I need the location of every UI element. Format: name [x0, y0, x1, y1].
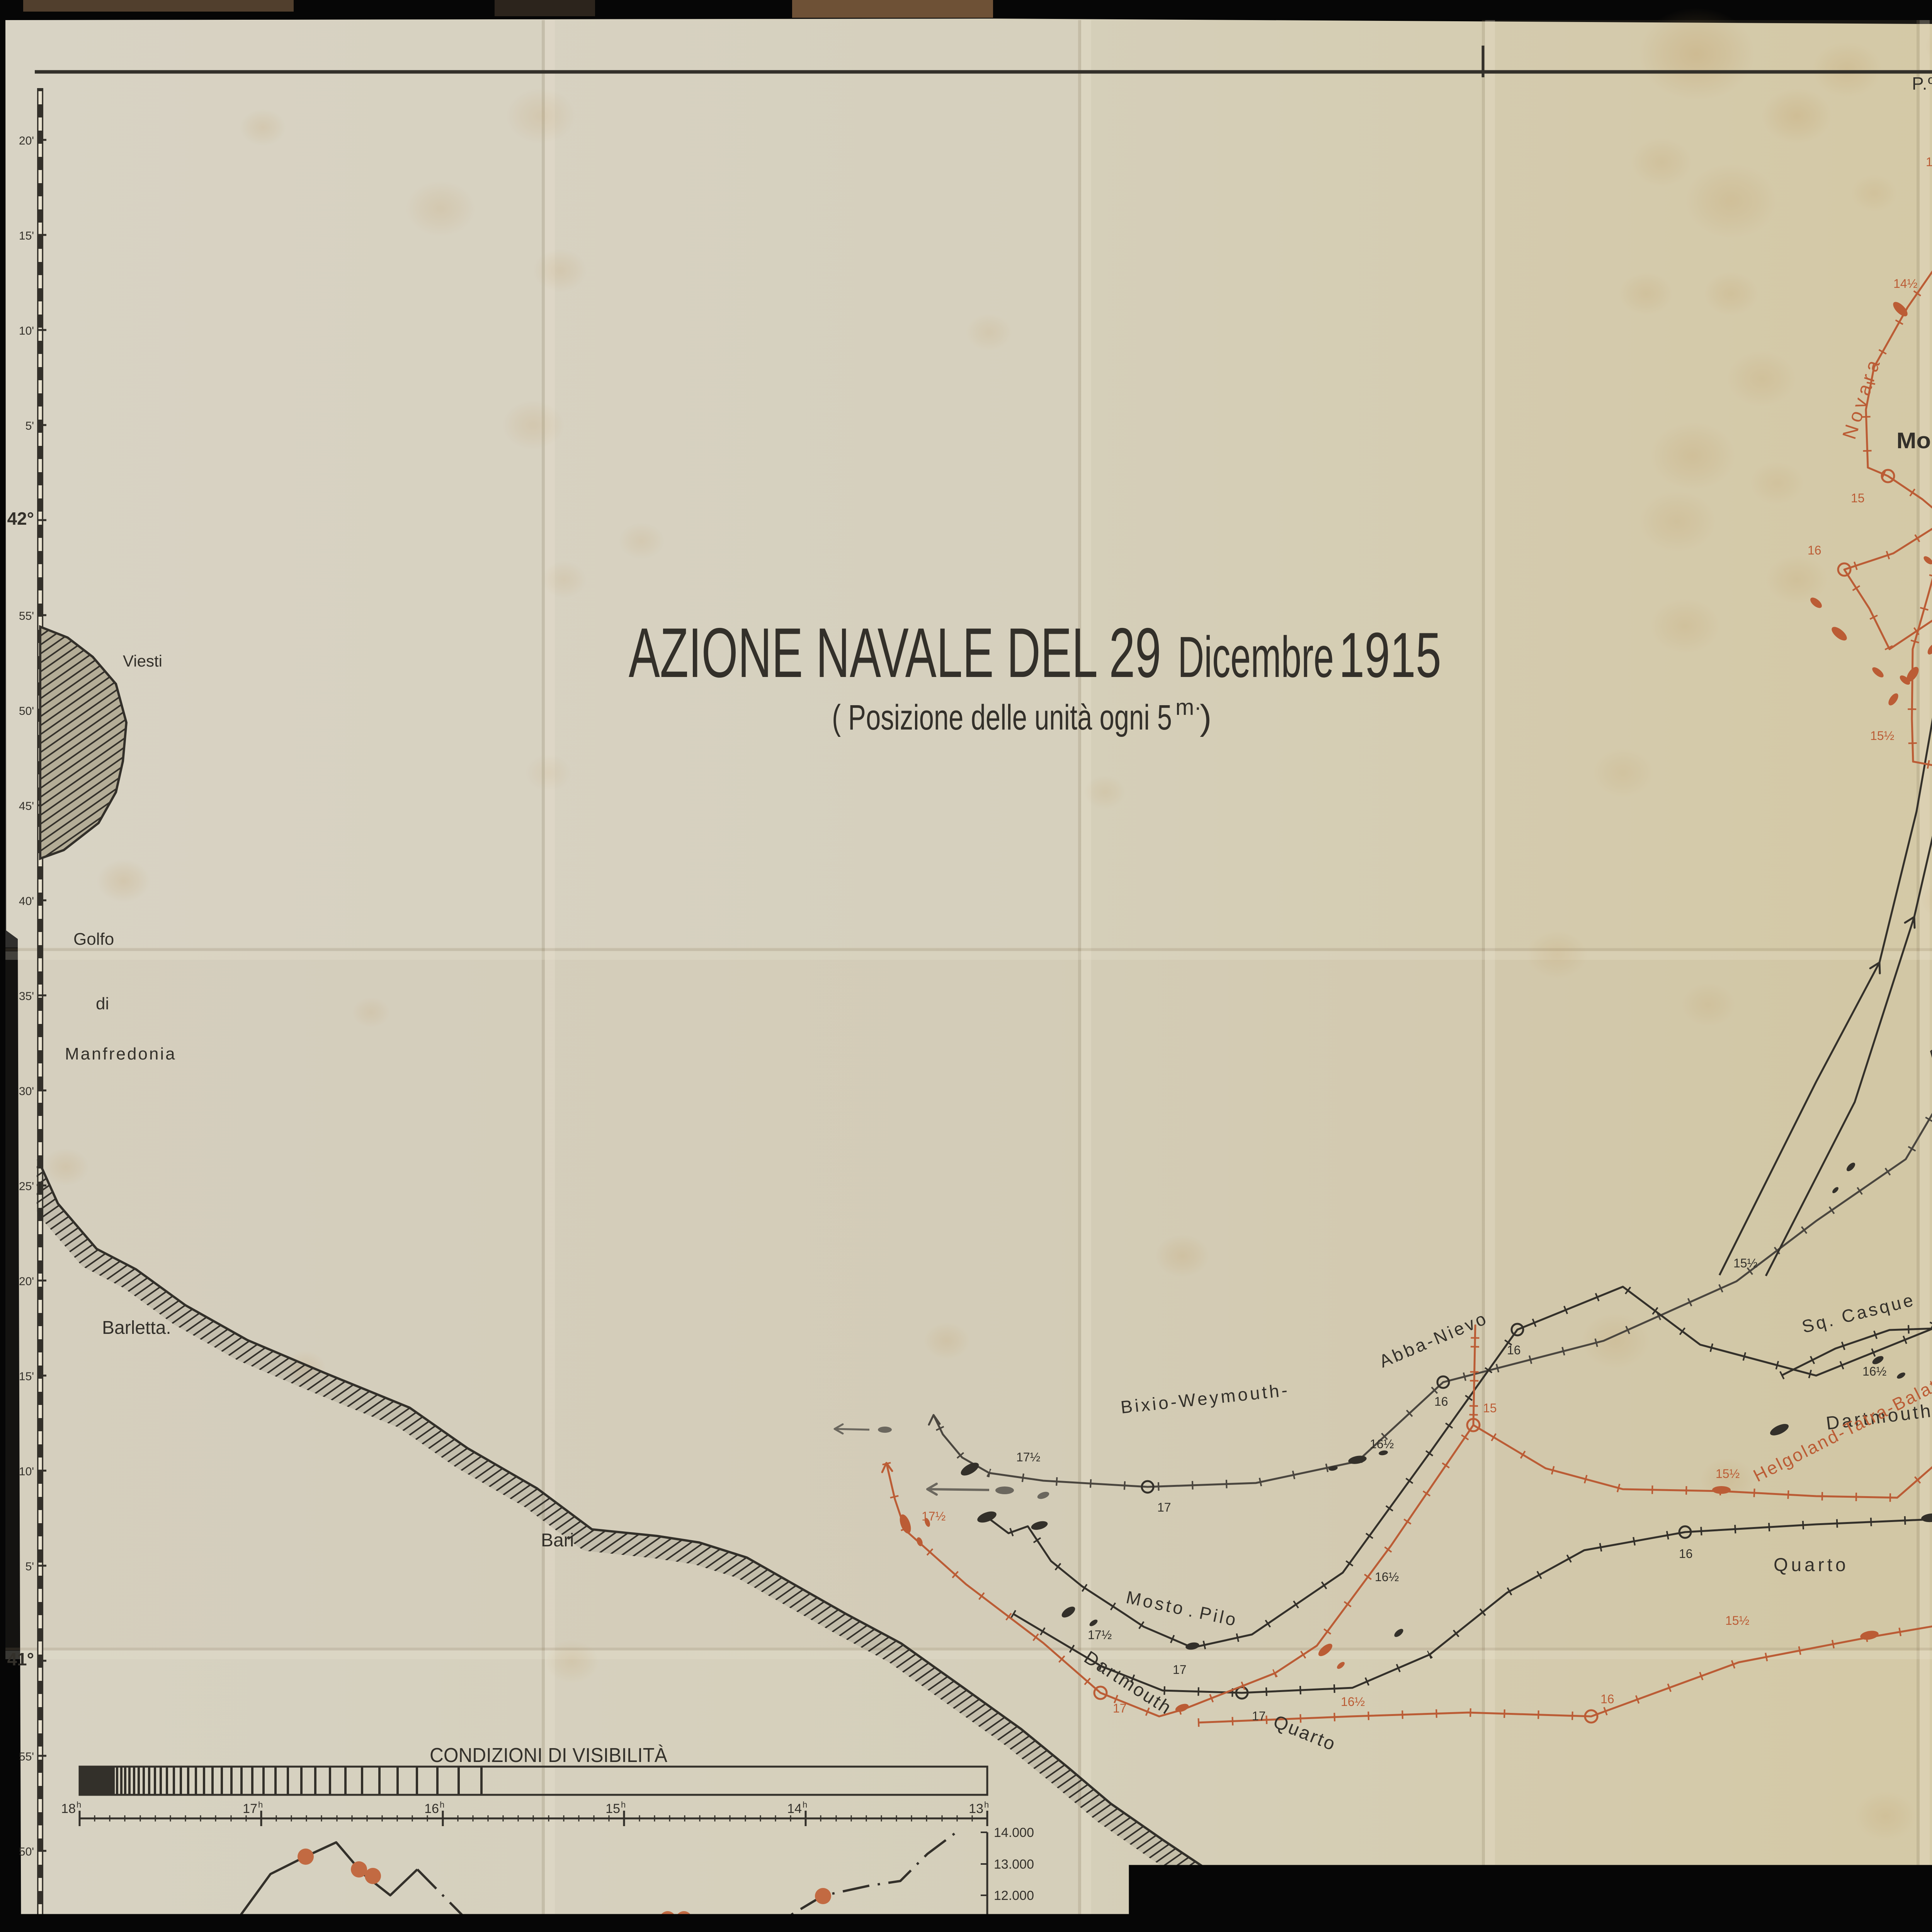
svg-text:12.000: 12.000 [994, 1888, 1034, 1903]
svg-text:14.000: 14.000 [994, 1825, 1034, 1840]
svg-text:15': 15' [19, 1370, 34, 1383]
svg-text:35': 35' [19, 990, 34, 1003]
svg-text:h: h [258, 1800, 263, 1810]
svg-text:h: h [803, 1800, 807, 1810]
svg-text:17: 17 [1113, 1701, 1127, 1715]
svg-text:17½: 17½ [1088, 1628, 1112, 1642]
svg-text:15: 15 [605, 1801, 620, 1816]
svg-text:16: 16 [1600, 1692, 1614, 1706]
svg-text:50': 50' [19, 705, 34, 718]
svg-text:Bari: Bari [541, 1530, 574, 1551]
svg-text:17½: 17½ [1016, 1450, 1040, 1464]
svg-text:16½: 16½ [1341, 1695, 1365, 1709]
svg-text:h: h [621, 1800, 626, 1810]
svg-text:20': 20' [19, 134, 34, 147]
svg-text:17: 17 [243, 1801, 257, 1816]
svg-text:16½: 16½ [1862, 1364, 1886, 1378]
svg-text:P.º d'Ostro: P.º d'Ostro [1912, 73, 1932, 94]
svg-text:10': 10' [19, 325, 34, 337]
svg-text:m·: m· [1175, 695, 1202, 720]
svg-text:15: 15 [1851, 491, 1865, 505]
svg-text:16: 16 [1507, 1343, 1521, 1357]
svg-text:Viesti: Viesti [123, 652, 162, 670]
svg-text:42°: 42° [7, 509, 34, 529]
svg-text:Quarto: Quarto [1774, 1555, 1849, 1575]
svg-text:15½: 15½ [1733, 1256, 1757, 1270]
svg-text:16½: 16½ [1375, 1570, 1399, 1584]
svg-text:17: 17 [1157, 1500, 1171, 1514]
svg-text:17: 17 [1252, 1709, 1266, 1723]
svg-text:11.000: 11.000 [994, 1920, 1033, 1932]
svg-text:AZIONE NAVALE DEL 29: AZIONE NAVALE DEL 29 [629, 613, 1161, 692]
svg-text:Manfredonia: Manfredonia [65, 1044, 177, 1063]
svg-text:16½: 16½ [1370, 1437, 1394, 1451]
svg-text:Golfo: Golfo [73, 930, 114, 949]
svg-text:13.000: 13.000 [994, 1857, 1034, 1872]
svg-text:15½: 15½ [1870, 729, 1894, 743]
svg-text:10': 10' [19, 1465, 34, 1478]
svg-text:h: h [440, 1800, 444, 1810]
svg-text:15': 15' [19, 230, 34, 242]
svg-text:15½: 15½ [1716, 1467, 1740, 1481]
svg-text:h: h [984, 1800, 989, 1810]
svg-text:55': 55' [19, 610, 34, 622]
svg-text:13: 13 [969, 1801, 983, 1816]
svg-text:14: 14 [787, 1801, 802, 1816]
svg-text:): ) [1200, 698, 1212, 737]
svg-text:30': 30' [19, 1085, 34, 1098]
svg-text:16: 16 [424, 1801, 439, 1816]
svg-text:16: 16 [1434, 1395, 1448, 1408]
svg-text:15½: 15½ [1926, 155, 1932, 169]
svg-text:h: h [77, 1800, 81, 1810]
svg-text:Barletta.: Barletta. [102, 1318, 171, 1338]
svg-text:15½: 15½ [1725, 1614, 1749, 1628]
svg-text:Dicembre: Dicembre [1178, 624, 1334, 689]
svg-text:5': 5' [26, 1560, 34, 1573]
svg-text:25': 25' [19, 1180, 34, 1193]
svg-text:17½: 17½ [922, 1509, 946, 1523]
svg-text:1915: 1915 [1339, 619, 1441, 690]
svg-text:16: 16 [1679, 1547, 1693, 1561]
svg-text:40': 40' [19, 895, 34, 908]
svg-text:di: di [96, 994, 109, 1013]
svg-text:14½: 14½ [1893, 277, 1917, 291]
svg-text:Monge+: Monge+ [1896, 428, 1932, 453]
svg-text:CONDIZIONI DI VISIBILITÀ: CONDIZIONI DI VISIBILITÀ [430, 1744, 667, 1767]
svg-text:20': 20' [19, 1275, 34, 1288]
svg-text:5': 5' [26, 420, 34, 432]
svg-text:( Posizione delle unità ogni 5: ( Posizione delle unità ogni 5 [832, 698, 1172, 737]
svg-text:18: 18 [61, 1801, 76, 1816]
svg-text:50': 50' [19, 1845, 34, 1858]
svg-text:45': 45' [19, 800, 34, 813]
svg-text:55': 55' [19, 1750, 34, 1763]
svg-text:15: 15 [1483, 1401, 1497, 1415]
svg-text:17: 17 [1173, 1663, 1187, 1677]
svg-text:41°: 41° [7, 1649, 34, 1669]
svg-text:16: 16 [1808, 543, 1821, 557]
